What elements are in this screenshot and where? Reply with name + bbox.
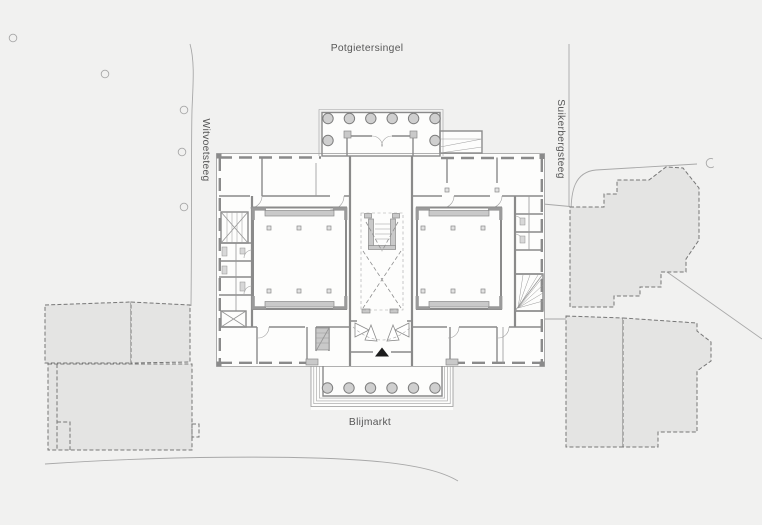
- hall-wall-bar: [265, 211, 334, 217]
- site-plan-canvas: Potgietersingel Blijmarkt Witvoetsteeg S…: [0, 0, 762, 525]
- hall-wall-bar: [429, 211, 489, 217]
- hall-wall-bar: [429, 302, 489, 308]
- neighbor-block: [131, 302, 190, 363]
- street-label-west: Witvoetsteeg: [200, 118, 211, 181]
- central-stair-landing: [369, 246, 396, 250]
- main-building: [216, 110, 545, 411]
- site-plan-page: Potgietersingel Blijmarkt Witvoetsteeg S…: [0, 0, 762, 525]
- hall-wall-bar: [265, 302, 334, 308]
- neighbor-block: [566, 316, 623, 447]
- street-label-north: Potgietersingel: [331, 43, 404, 54]
- street-label-east: Suikerbergsteeg: [555, 99, 566, 178]
- neighbor-block: [45, 302, 131, 363]
- neighbor-buildings-west: [45, 302, 199, 450]
- street-label-south: Blijmarkt: [349, 417, 391, 428]
